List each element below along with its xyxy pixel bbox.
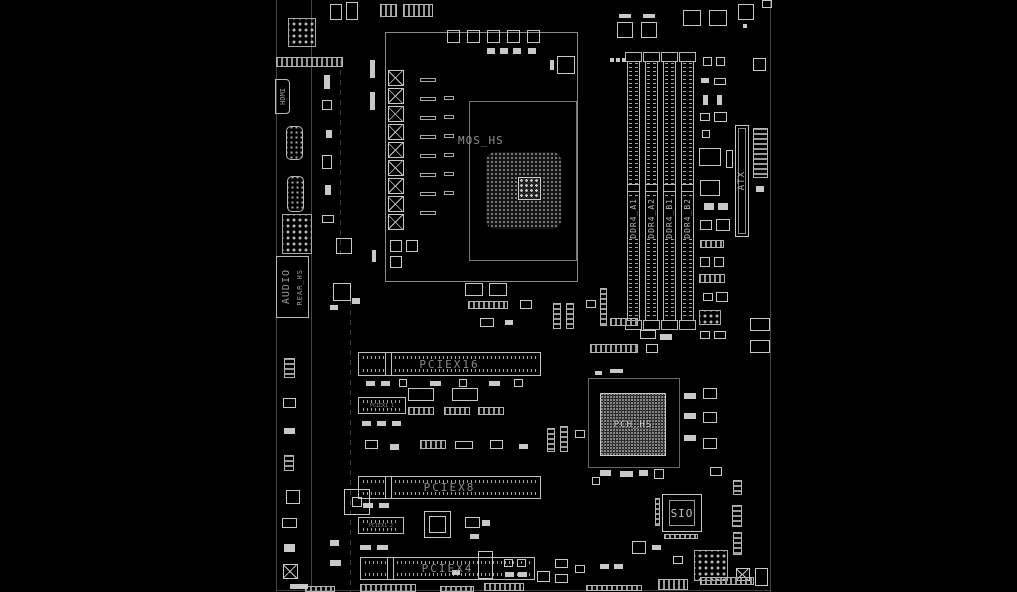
component (372, 250, 376, 262)
vrm-choke (388, 70, 404, 86)
header-connector (305, 586, 335, 592)
component (527, 30, 540, 43)
component (447, 30, 460, 43)
component (470, 534, 479, 539)
component (755, 568, 768, 586)
header-connector (444, 407, 470, 415)
component (392, 421, 401, 426)
capacitor (444, 172, 454, 176)
dsub-port-1[interactable] (286, 126, 303, 160)
component (716, 57, 725, 66)
component (290, 584, 308, 589)
component (700, 257, 710, 267)
dimm-label: DDR4_A1 (628, 148, 639, 288)
component (704, 203, 714, 210)
component (710, 467, 722, 476)
component (430, 381, 441, 386)
pciex1-2-slot[interactable]: PCIEX1_2 (358, 517, 404, 534)
dimm-latch[interactable] (679, 52, 696, 62)
component (641, 22, 657, 38)
header-connector (403, 4, 433, 17)
atx-inner: ATX (738, 128, 746, 234)
component (360, 545, 371, 550)
component (600, 564, 609, 569)
dimm-label: DDR4_B2 (682, 148, 693, 288)
pciex16-label: PCIEX16 (359, 353, 540, 375)
component (352, 497, 362, 507)
atx-power-connector[interactable]: ATX (735, 125, 749, 237)
component (726, 150, 733, 168)
component (555, 574, 568, 583)
component (528, 48, 536, 54)
cpu-socket[interactable] (486, 152, 561, 229)
component (487, 48, 495, 54)
capacitor (420, 154, 436, 158)
component (632, 541, 646, 554)
component (610, 58, 614, 62)
component (330, 540, 339, 546)
component (326, 130, 332, 138)
component (614, 564, 623, 569)
header-connector (590, 344, 638, 353)
pin-grid (288, 18, 316, 47)
pin-header (560, 426, 568, 452)
header-connector (484, 583, 524, 591)
capacitor (444, 191, 454, 195)
header-connector (700, 577, 754, 585)
component (377, 545, 388, 550)
header-connector (478, 407, 504, 415)
capacitor (444, 96, 454, 100)
component (557, 56, 575, 74)
component (756, 186, 764, 192)
component (616, 58, 620, 62)
motherboard-boardview-diagram: HDMI AUDIO REAR_HS MOS_HS DDR4_A1 DDR4_A… (0, 0, 1017, 592)
header-connector (699, 274, 725, 283)
component (537, 571, 550, 582)
dimm-latch[interactable] (643, 320, 660, 330)
component (575, 430, 585, 438)
dsub-port-2[interactable] (287, 176, 304, 212)
component (286, 490, 300, 504)
component (336, 238, 352, 254)
atx-label: ATX (737, 171, 747, 190)
component (684, 393, 696, 399)
hdmi-port[interactable]: HDMI (275, 79, 290, 114)
component (743, 24, 747, 28)
component (408, 388, 434, 401)
component (333, 283, 351, 301)
component (452, 388, 478, 401)
component (379, 503, 389, 508)
component (370, 60, 375, 78)
audio-label: AUDIO (281, 269, 292, 304)
header-connector (380, 4, 397, 17)
capacitor (444, 115, 454, 119)
component (717, 95, 722, 105)
sio-label: SIO (671, 507, 694, 520)
mos-hs-label: MOS_HS (458, 134, 504, 147)
pch-hs-label: PCH_HS (614, 420, 653, 430)
component (699, 148, 721, 166)
component (520, 300, 532, 309)
component (377, 421, 386, 426)
component (714, 331, 726, 339)
component (482, 520, 490, 526)
component (673, 556, 683, 564)
component (703, 293, 713, 301)
audio-rear-block[interactable]: AUDIO REAR_HS (276, 256, 309, 318)
component (284, 428, 295, 434)
component (362, 421, 371, 426)
component (325, 185, 331, 195)
pin-header (733, 532, 742, 555)
pin-header (733, 480, 742, 495)
component (703, 438, 717, 449)
component (700, 220, 712, 230)
dimm-latch[interactable] (661, 320, 678, 330)
component (643, 14, 655, 18)
pin-header (284, 455, 294, 471)
component (322, 215, 334, 223)
component (684, 413, 696, 419)
sio-chip[interactable]: SIO (662, 494, 702, 532)
component (750, 340, 770, 353)
component (595, 371, 602, 375)
component (716, 292, 728, 302)
pciex16-slot[interactable]: PCIEX16 (358, 352, 541, 376)
header-connector (658, 579, 688, 590)
component (480, 318, 494, 327)
component (640, 330, 656, 339)
vrm-choke (388, 196, 404, 212)
component (399, 379, 407, 387)
vrm-choke (388, 88, 404, 104)
header-connector (440, 586, 474, 592)
vrm-choke (388, 160, 404, 176)
vrm-choke (283, 564, 298, 579)
capacitor (420, 211, 436, 215)
vrm-choke (388, 124, 404, 140)
component (716, 219, 730, 231)
component (762, 0, 772, 8)
component (406, 240, 418, 252)
pciex4-slot[interactable]: PCIEX4 (360, 557, 535, 580)
component (455, 441, 473, 449)
component (370, 92, 375, 110)
pciex1-2-label: PCIEX1_2 (359, 518, 403, 533)
rear-hs-label: REAR_HS (296, 269, 304, 306)
cpu-socket-center (518, 177, 541, 200)
capacitor (420, 78, 436, 82)
capacitor (444, 134, 454, 138)
component (617, 22, 633, 38)
pin-header (732, 505, 742, 527)
pin-header (655, 498, 660, 526)
component (330, 305, 338, 310)
component (619, 14, 631, 18)
component (282, 518, 297, 528)
dimm-slot-ddr4-a1[interactable]: DDR4_A1 (627, 52, 640, 330)
component (513, 48, 521, 54)
component (703, 388, 717, 399)
component (505, 320, 513, 325)
component (646, 344, 658, 353)
pch-chip[interactable]: PCH_HS (600, 393, 666, 456)
component (390, 444, 399, 450)
component (365, 440, 378, 449)
capacitor (444, 153, 454, 157)
pin-header (547, 428, 555, 452)
pin-grid (282, 214, 312, 254)
pciex8-slot[interactable]: PCIEX8 (358, 476, 541, 499)
component (322, 100, 332, 110)
capacitor (420, 97, 436, 101)
vrm-choke (388, 106, 404, 122)
component (489, 381, 500, 386)
component (683, 10, 701, 26)
header-connector (420, 440, 446, 449)
board-trace-line (350, 300, 351, 592)
component (429, 516, 446, 533)
component (718, 203, 728, 210)
dimm-latch[interactable] (661, 52, 678, 62)
component (555, 559, 568, 568)
component (703, 412, 717, 423)
component (652, 545, 661, 550)
component (346, 2, 358, 20)
component (702, 130, 710, 138)
component (352, 298, 360, 304)
component (660, 334, 672, 340)
component (714, 78, 726, 85)
component (487, 30, 500, 43)
component (467, 30, 480, 43)
pin-header (600, 288, 607, 326)
component (753, 58, 766, 71)
component (322, 155, 332, 169)
capacitor (420, 192, 436, 196)
capacitor (420, 135, 436, 139)
capacitor (420, 116, 436, 120)
header-connector (610, 318, 638, 326)
component (700, 331, 710, 339)
vrm-choke (388, 142, 404, 158)
header-connector (586, 585, 642, 591)
component (714, 257, 724, 267)
component (489, 283, 507, 296)
component (620, 471, 633, 477)
component (703, 95, 708, 105)
pin-header (753, 128, 768, 178)
dimm-latch[interactable] (643, 52, 660, 62)
component (750, 318, 770, 331)
component (330, 4, 342, 20)
component (575, 565, 585, 573)
hdmi-label: HDMI (279, 88, 287, 105)
board-right-edge (770, 0, 771, 592)
pin-header (566, 303, 574, 329)
header-connector (360, 584, 416, 592)
component (381, 381, 390, 386)
component (284, 544, 295, 552)
header-connector (700, 240, 724, 248)
component (600, 470, 611, 476)
dimm-latch[interactable] (679, 320, 696, 330)
board-io-edge-line (311, 0, 312, 592)
component (610, 369, 623, 373)
component (592, 477, 600, 485)
component (700, 113, 710, 121)
vrm-choke (388, 178, 404, 194)
pciex1-1-slot[interactable]: PCIEX1_1 (358, 397, 406, 414)
component (465, 517, 480, 528)
component (714, 112, 727, 122)
component (622, 58, 626, 62)
capacitor (420, 173, 436, 177)
component (330, 560, 341, 566)
component (390, 240, 402, 252)
component (500, 48, 508, 54)
component (490, 440, 503, 449)
component (586, 300, 596, 308)
dimm-slot-ddr4-b1[interactable]: DDR4_B1 (663, 52, 676, 330)
component (465, 283, 483, 296)
pciex4-label: PCIEX4 (361, 558, 534, 579)
component (324, 75, 330, 89)
pciex1-1-label: PCIEX1_1 (359, 398, 405, 413)
vrm-choke (388, 214, 404, 230)
component (684, 435, 696, 441)
pin-header (284, 358, 295, 378)
dimm-slot-ddr4-b2[interactable]: DDR4_B2 (681, 52, 694, 330)
component (550, 60, 554, 70)
dimm-label: DDR4_B1 (664, 148, 675, 288)
component (738, 4, 754, 20)
component (459, 379, 467, 387)
header-connector (408, 407, 434, 415)
component (390, 256, 402, 268)
pin-header (553, 303, 561, 329)
pciex8-label: PCIEX8 (359, 477, 540, 498)
component (514, 379, 523, 387)
board-trace-line (340, 60, 341, 260)
component (701, 78, 709, 83)
component (283, 398, 296, 408)
dimm-latch[interactable] (625, 52, 642, 62)
component (700, 180, 720, 196)
dimm-label: DDR4_A2 (646, 148, 657, 288)
pin-grid (699, 310, 721, 325)
component (709, 10, 727, 26)
component (654, 469, 664, 479)
component (703, 57, 712, 66)
component (639, 470, 648, 476)
component (507, 30, 520, 43)
component (519, 444, 528, 449)
dimm-slot-ddr4-a2[interactable]: DDR4_A2 (645, 52, 658, 330)
header-connector (276, 57, 343, 67)
header-connector (664, 534, 698, 539)
header-connector (468, 301, 508, 309)
component (366, 381, 375, 386)
